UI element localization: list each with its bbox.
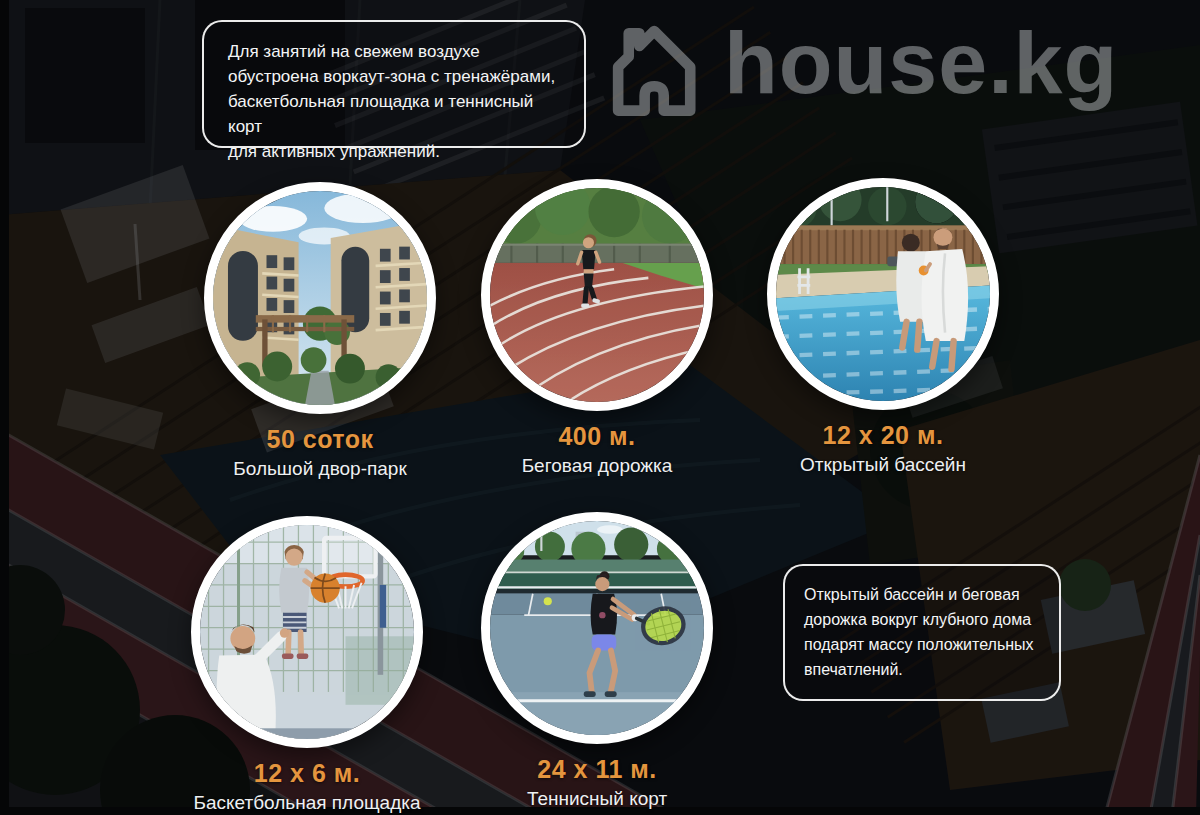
basketball-court-photo [191,516,423,748]
feature-value: 50 соток [180,425,460,454]
note-box-pool: Открытый бассейн и беговая дорожка вокру… [783,564,1061,701]
courtyard-park-photo [204,182,436,414]
feature-label: Баскетбольная площадка [167,792,447,814]
basketball-court-illustration [200,525,414,739]
feature-running-track: 400 м. Беговая дорожка [457,179,737,477]
feature-label: Открытый бассейн [743,454,1023,476]
courtyard-park-illustration [213,191,427,405]
feature-value: 12 x 6 м. [167,759,447,788]
feature-label: Беговая дорожка [457,455,737,477]
feature-tennis-court: 24 x 11 м. Теннисный корт [457,512,737,810]
feature-value: 24 x 11 м. [457,755,737,784]
feature-value: 12 x 20 м. [743,421,1023,450]
running-track-illustration [490,188,704,402]
feature-basketball-court: 12 x 6 м. Баскетбольная площадка [167,516,447,814]
outdoor-pool-illustration [776,187,990,401]
feature-label: Теннисный корт [457,788,737,810]
tennis-court-illustration [490,521,704,735]
note-bottom-text: Открытый бассейн и беговая дорожка вокру… [804,582,1040,682]
feature-courtyard-park: 50 соток Большой двор-парк [180,182,460,480]
left-edge-strip [0,0,9,815]
feature-outdoor-pool: 12 x 20 м. Открытый бассейн [743,178,1023,476]
running-track-photo [481,179,713,411]
outdoor-pool-photo [767,178,999,410]
note-top-text: Для занятий на свежем воздухе обустроена… [228,39,560,164]
feature-value: 400 м. [457,422,737,451]
tennis-court-photo [481,512,713,744]
note-box-workout: Для занятий на свежем воздухе обустроена… [202,20,586,148]
promo-page: house.kg Для занятий на свежем воздухе о… [0,0,1200,815]
feature-label: Большой двор-парк [180,458,460,480]
